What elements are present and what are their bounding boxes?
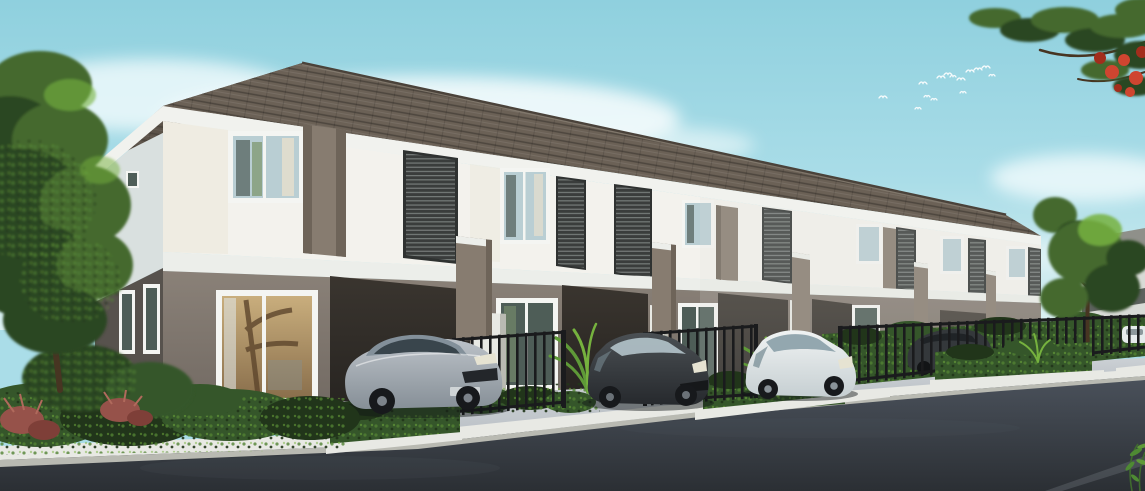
rendering-canvas: Row of modern two-storey townhouses with… — [0, 0, 1145, 491]
scene-svg — [0, 0, 1145, 491]
bird — [989, 75, 995, 76]
louver-panel — [556, 176, 586, 270]
bird — [931, 99, 937, 100]
louver-panel — [614, 184, 652, 280]
louver-panel — [403, 150, 458, 264]
bird — [915, 108, 921, 109]
bird — [950, 76, 956, 77]
bird — [924, 96, 930, 97]
bird — [960, 92, 966, 93]
unit1-sliding-door — [216, 290, 318, 404]
